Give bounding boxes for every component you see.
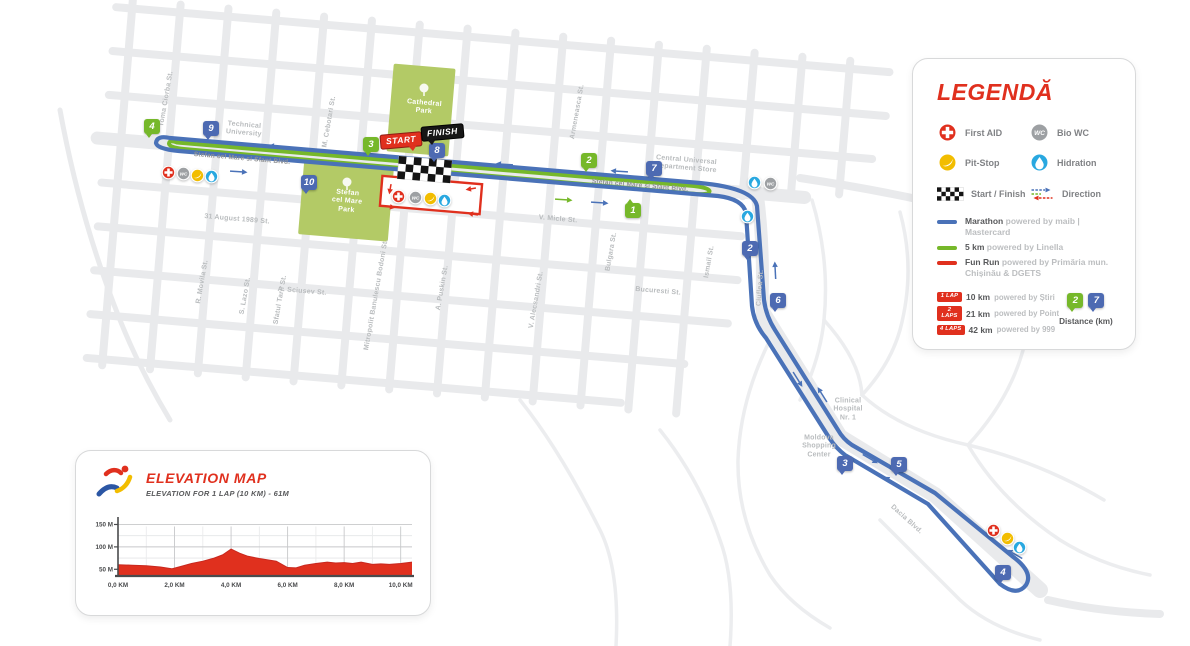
start-sign: START [379, 131, 422, 150]
blue-distance-pin: 7 [1088, 293, 1104, 308]
elevation-panel: ELEVATION MAP ELEVATION FOR 1 LAP (10 KM… [75, 450, 431, 616]
svg-text:WC: WC [411, 195, 419, 200]
svg-text:150 M: 150 M [95, 522, 113, 529]
svg-text:0,0 KM: 0,0 KM [108, 582, 128, 589]
street-label: Dacia Blvd. [888, 504, 923, 537]
legend-service-items: First AID WC Bio WC Pit-Stop Hidration [937, 122, 1111, 173]
lap-sponsor: powered by Știri [994, 293, 1055, 302]
park-label: Cathedral Park [406, 98, 442, 118]
svg-text:WC: WC [1034, 130, 1045, 137]
lap-distance: 21 km [966, 309, 990, 319]
five-km-line-swatch [937, 246, 957, 250]
route-label: Stefan cel Mare si Sfant Blvd. [592, 178, 689, 194]
place-label: Central Universal Department Store [654, 154, 717, 176]
svg-text:WC: WC [766, 181, 774, 186]
green-distance-pin: 2 [1067, 293, 1083, 308]
place-label: Moldova Shopping Center [802, 434, 836, 459]
svg-text:100 M: 100 M [95, 544, 113, 551]
lap-badge: 4 LAPS [937, 325, 965, 335]
legend-laps-distance: 1 LAP 10 km powered by Știri 2 LAPS 21 k… [937, 292, 1111, 338]
route-name: Fun Run [965, 257, 999, 267]
legend-route-fun-run: Fun Run powered by Primăria mun. Chișină… [937, 257, 1111, 279]
route-label: Stefan cel Mare si Sfant Blvd. [194, 151, 291, 167]
legend-item-hidration: Hidration [1029, 152, 1111, 173]
km-pin-green-2: 2 [581, 153, 597, 168]
marathon-route-map-page: 49103827126354WCWCWCToma Ciorba St.M. Ce… [0, 0, 1190, 646]
first-aid-icon [391, 189, 406, 204]
marathon-line-swatch [937, 220, 957, 224]
lap-row-21km: 2 LAPS 21 km powered by Point [937, 306, 1059, 322]
svg-text:6,0 KM: 6,0 KM [277, 582, 297, 589]
place-label: Technical University [225, 120, 262, 140]
hidration-icon [204, 169, 219, 184]
park-label: Stefan cel Mare Park [331, 188, 363, 216]
route-sponsor: powered by Linella [987, 242, 1064, 252]
legend-item-label: Hidration [1057, 158, 1097, 168]
km-pin-blue-6: 6 [770, 293, 786, 308]
start-finish-icon [937, 187, 964, 201]
street-label: Ismail St. [703, 245, 717, 279]
km-pin-blue-2: 2 [742, 241, 758, 256]
km-pin-blue-4: 4 [995, 565, 1011, 580]
legend-item-label: Pit-Stop [965, 158, 1000, 168]
first-aid-icon [986, 523, 1001, 538]
fun-run-line-swatch [937, 261, 957, 265]
elevation-title: ELEVATION MAP [146, 470, 289, 486]
route-name: Marathon [965, 216, 1003, 226]
distance-label: Distance (km) [1059, 317, 1113, 326]
place-label: Clinical Hospital Nr. 1 [833, 397, 862, 422]
km-pin-blue-3: 3 [837, 456, 853, 471]
street-label: A. Puskin St. [435, 265, 451, 311]
lap-row-10km: 1 LAP 10 km powered by Știri [937, 292, 1059, 302]
svg-text:WC: WC [179, 171, 187, 176]
street-label: V. Alecsandri St. [528, 271, 546, 329]
street-label: Sfatul Tarii St. [273, 275, 290, 325]
hidration-icon [437, 193, 452, 208]
street-label: Mitropolit Banulescu Bodoni St. [363, 239, 391, 351]
street-label: S. Lazo St. [239, 277, 254, 315]
bio-wc-icon: WC [408, 190, 423, 205]
hidration-icon [740, 209, 755, 224]
km-pin-green-1: 1 [625, 203, 641, 218]
legend-item-label: Start / Finish [971, 189, 1026, 199]
street-label: Armeneasca St. [569, 84, 587, 140]
legend-item-label: Bio WC [1057, 128, 1089, 138]
lap-badge: 1 LAP [937, 292, 962, 302]
street-label: Ciuflea St. [756, 270, 767, 307]
legend-item-start-finish: Start / Finish [937, 187, 1029, 201]
legend-item-direction: Direction [1029, 187, 1111, 201]
pit-stop-icon [423, 191, 438, 206]
svg-text:4,0 KM: 4,0 KM [221, 582, 241, 589]
bio-wc-icon: WC [1029, 122, 1050, 143]
legend-item-first-aid: First AID [937, 122, 1029, 143]
km-pin-blue-7: 7 [646, 161, 662, 176]
lap-badge: 2 LAPS [937, 306, 962, 322]
hidration-icon [747, 175, 762, 190]
legend-item-label: Direction [1062, 189, 1101, 199]
pit-stop-icon [190, 168, 205, 183]
lap-distance: 42 km [969, 325, 993, 335]
street-label: 31 August 1989 St. [204, 213, 270, 227]
street-label: R. Movila St. [195, 259, 211, 304]
street-label: Bulgara St. [604, 232, 619, 272]
km-pin-green-4: 4 [144, 119, 160, 134]
svg-text:2,0 KM: 2,0 KM [164, 582, 184, 589]
legend-route-5km: 5 km powered by Linella [937, 242, 1111, 253]
lap-sponsor: powered by Point [994, 309, 1059, 318]
direction-icon [1029, 187, 1055, 201]
km-pin-blue-5: 5 [891, 457, 907, 472]
distance-legend: 2 7 Distance (km) [1059, 292, 1113, 338]
lap-distance: 10 km [966, 292, 990, 302]
street-label: Toma Ciorba St. [158, 71, 176, 128]
legend-item-label: First AID [965, 128, 1002, 138]
svg-text:8,0 KM: 8,0 KM [334, 582, 354, 589]
elevation-chart: 50 M100 M150 M0,0 KM2,0 KM4,0 KM6,0 KM8,… [88, 508, 420, 596]
bio-wc-icon: WC [763, 176, 778, 191]
legend-flag-items: Start / Finish Direction [937, 187, 1111, 201]
pit-stop-icon [937, 152, 958, 173]
km-pin-green-3: 3 [363, 137, 379, 152]
lap-sponsor: powered by 999 [997, 325, 1056, 334]
hidration-icon [1012, 540, 1027, 555]
legend-title: LEGENDĂ [937, 79, 1111, 106]
route-name: 5 km [965, 242, 984, 252]
street-label: V. Micle St. [538, 214, 577, 226]
elevation-subtitle: ELEVATION FOR 1 LAP (10 KM) - 61M [146, 489, 289, 498]
legend-route-lines: Marathon powered by maib | Mastercard 5 … [937, 216, 1111, 279]
elevation-header: ELEVATION MAP ELEVATION FOR 1 LAP (10 KM… [94, 463, 418, 504]
marathon-logo [94, 463, 136, 504]
legend-item-bio-wc: WC Bio WC [1029, 122, 1111, 143]
legend-panel: LEGENDĂ First AID WC Bio WC Pit-Stop Hid… [912, 58, 1136, 350]
hidration-icon [1029, 152, 1050, 173]
svg-text:50 M: 50 M [99, 566, 113, 573]
bio-wc-icon: WC [176, 166, 191, 181]
svg-text:10,0 KM: 10,0 KM [389, 582, 413, 589]
legend-route-marathon: Marathon powered by maib | Mastercard [937, 216, 1111, 238]
lap-legend: 1 LAP 10 km powered by Știri 2 LAPS 21 k… [937, 292, 1059, 338]
street-label: M. Cebotari St. [321, 96, 338, 149]
legend-item-pit-stop: Pit-Stop [937, 152, 1029, 173]
km-pin-blue-10: 10 [301, 175, 317, 190]
first-aid-icon [937, 122, 958, 143]
lap-row-42km: 4 LAPS 42 km powered by 999 [937, 325, 1059, 335]
km-pin-blue-8: 8 [429, 143, 445, 158]
km-pin-blue-9: 9 [203, 121, 219, 136]
street-label: Bucuresti St. [635, 286, 681, 298]
first-aid-icon [161, 165, 176, 180]
